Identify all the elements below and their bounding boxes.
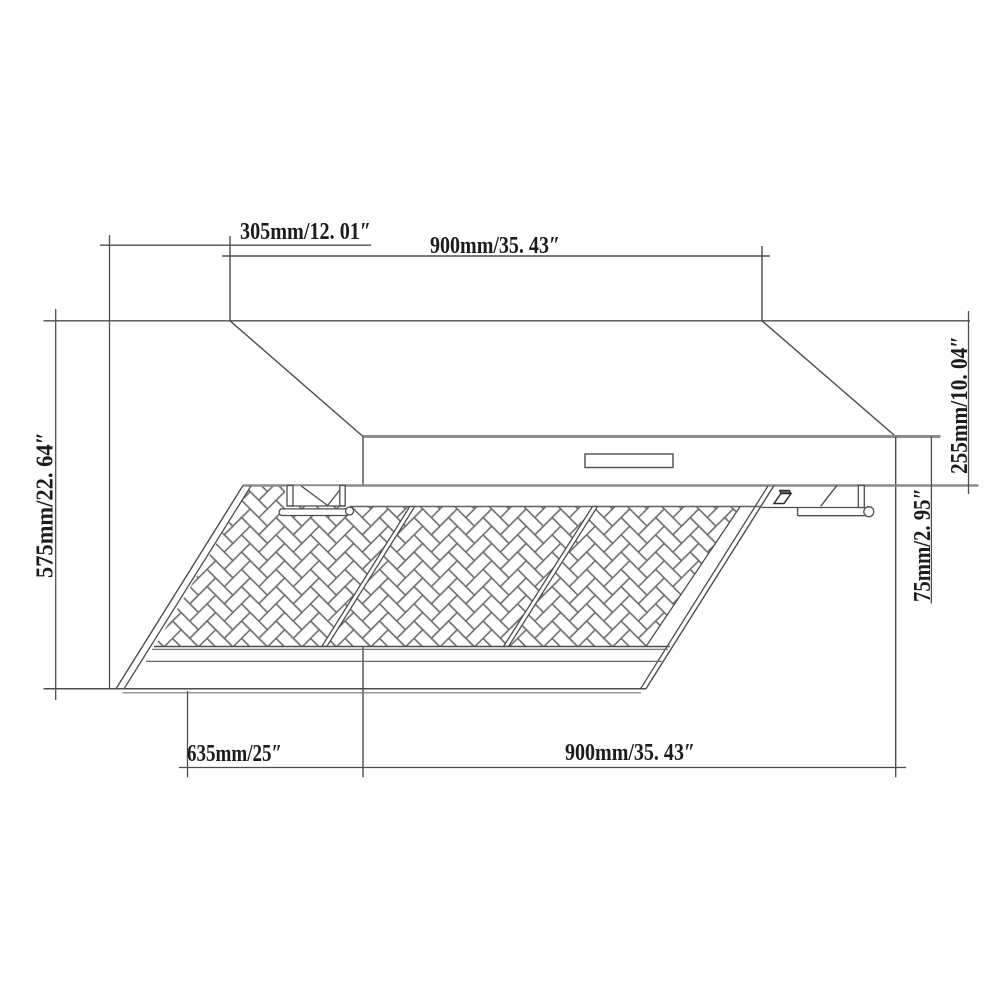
svg-text:305mm/12. 01″: 305mm/12. 01″	[240, 219, 371, 245]
svg-text:255mm/10. 04″: 255mm/10. 04″	[947, 336, 973, 474]
svg-text:635mm/25″: 635mm/25″	[187, 741, 282, 767]
svg-text:75mm/2. 95″: 75mm/2. 95″	[910, 488, 936, 602]
svg-text:900mm/35. 43″: 900mm/35. 43″	[565, 740, 695, 766]
svg-text:900mm/35. 43″: 900mm/35. 43″	[430, 233, 560, 259]
svg-text:575mm/22. 64″: 575mm/22. 64″	[33, 432, 59, 578]
